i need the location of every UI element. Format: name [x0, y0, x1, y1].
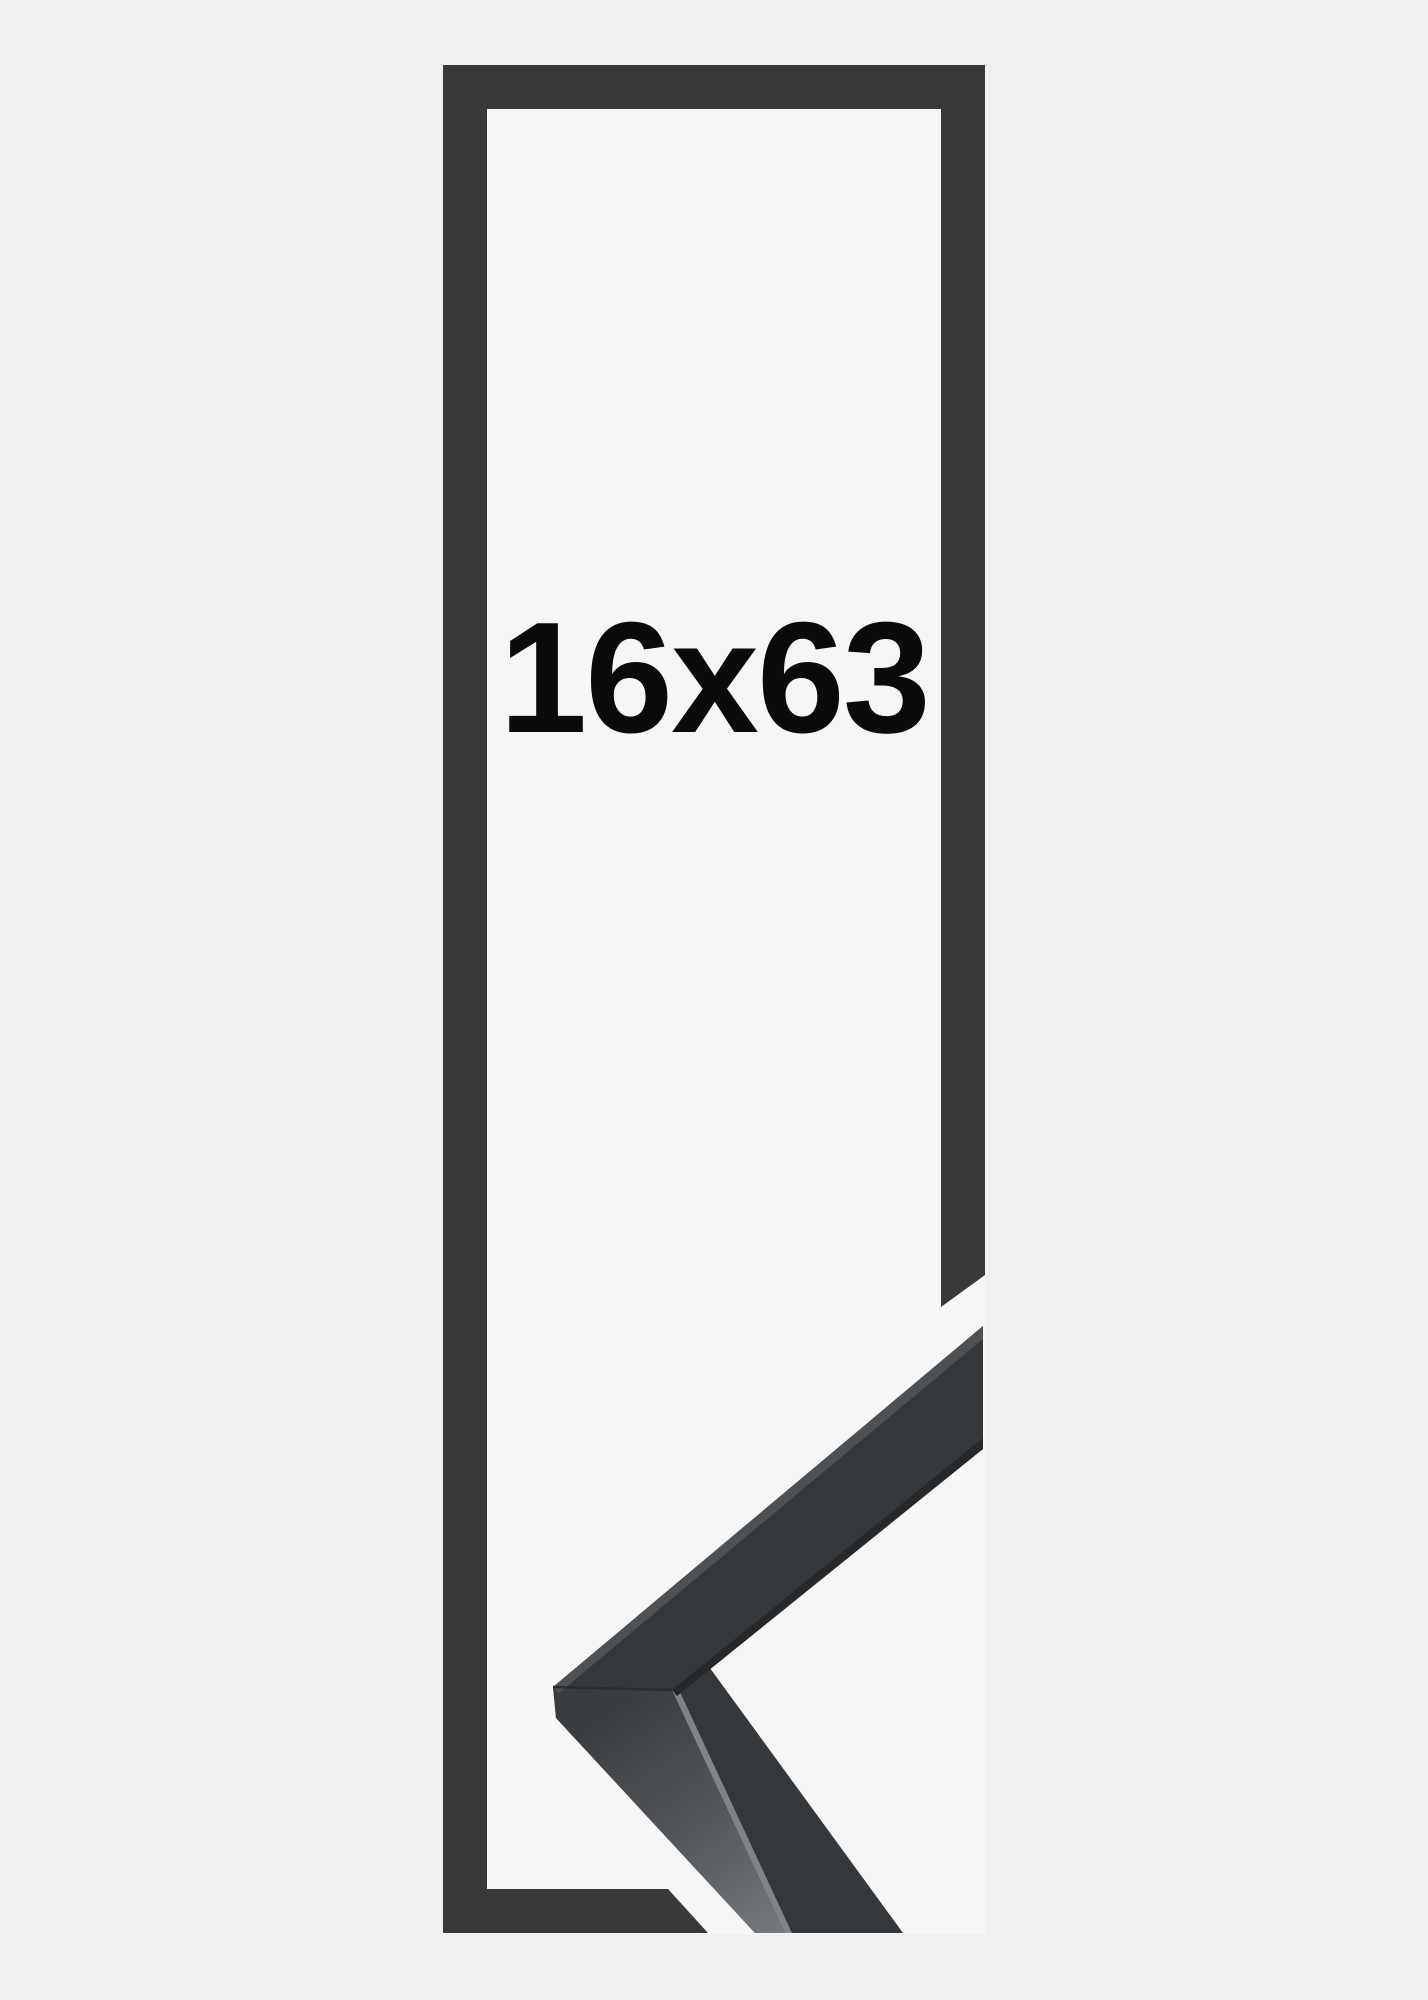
- frame-outline-left-bar: [443, 65, 487, 1933]
- corner-sample-moulding-silhouette: [553, 1326, 983, 1933]
- frame-size-label: 16x63: [443, 599, 985, 757]
- frame-outline-and-corner-graphic: [443, 65, 985, 1934]
- frame-outline-bottom-bar: [443, 1889, 708, 1933]
- frame-outline-top-bar: [443, 65, 985, 109]
- frame-product-image: 16x63: [443, 65, 985, 1934]
- corner-sample-upper-top-strip: [553, 1326, 983, 1693]
- frame-corner-sample-photo: [553, 1326, 983, 1933]
- page-background: 16x63: [0, 0, 1428, 2000]
